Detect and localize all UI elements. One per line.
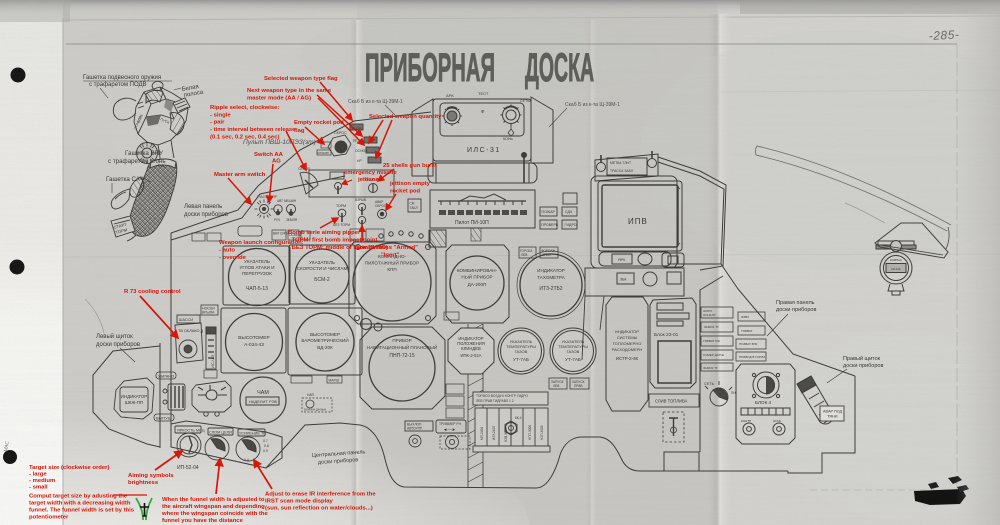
- svg-text:- pair: - pair: [210, 120, 225, 126]
- svg-text:25 shells gun burst: 25 shells gun burst: [383, 163, 437, 169]
- svg-text:Adjust to erase IR interferenc: Adjust to erase IR interference from the: [265, 492, 376, 498]
- svg-text:Bomb serie aiming pipper: Bomb serie aiming pipper: [288, 230, 361, 236]
- svg-text:Master arm switch: Master arm switch: [214, 172, 266, 178]
- svg-text:When the funnel width is adjus: When the funnel width is adjusted to: [162, 497, 265, 503]
- svg-text:- large: - large: [29, 472, 47, 478]
- svg-text:Selected weapon quantity: Selected weapon quantity: [369, 114, 442, 120]
- svg-text:master mode (AA / AG): master mode (AA / AG): [247, 96, 311, 102]
- svg-text:Bombs fuses "Armed": Bombs fuses "Armed": [355, 245, 418, 251]
- svg-text:- medium: - medium: [29, 478, 55, 484]
- svg-text:the aircraft wingspan and depe: the aircraft wingspan and depending: [162, 504, 265, 510]
- svg-text:where the wingspan coincide wi: where the wingspan coincide with the: [161, 511, 268, 517]
- svg-text:- small: - small: [29, 485, 48, 491]
- svg-text:jettison empty: jettison empty: [389, 181, 431, 187]
- svg-text:brightness: brightness: [128, 480, 159, 486]
- svg-text:rocket pod: rocket pod: [390, 189, 421, 195]
- svg-text:potentiometer: potentiometer: [29, 515, 69, 521]
- svg-text:IRST scan mode display: IRST scan mode display: [265, 499, 333, 505]
- svg-text:(0.1 sec, 0.2 sec, 0.4 sec): (0.1 sec, 0.2 sec, 0.4 sec): [210, 135, 279, 141]
- svg-text:Empty rocket pod: Empty rocket pod: [294, 120, 344, 126]
- svg-text:Target size (clockwise order): Target size (clockwise order): [29, 465, 109, 471]
- svg-text:- time interval between releas: - time interval between release: [210, 127, 296, 133]
- svg-text:Weapon launch configuration:: Weapon launch configuration:: [219, 240, 304, 246]
- svg-text:Ripple select, clockwise:: Ripple select, clockwise:: [210, 105, 279, 111]
- svg-text:Switch AA: Switch AA: [254, 152, 284, 158]
- svg-text:- override: - override: [219, 255, 247, 261]
- svg-text:jettison: jettison: [357, 177, 379, 183]
- svg-text:funnel you have the distance: funnel you have the distance: [162, 518, 244, 524]
- svg-text:Selected weapon type flag: Selected weapon type flag: [264, 76, 338, 82]
- svg-text:funnel. The funnel width is se: funnel. The funnel width is set by this: [29, 508, 135, 514]
- svg-text:- auto: - auto: [219, 248, 235, 254]
- svg-text:(sun, sun reflection on water/: (sun, sun reflection on water/clouds...): [265, 506, 373, 512]
- svg-text:"Inert": "Inert": [381, 253, 400, 259]
- svg-text:Next weapon type in the same: Next weapon type in the same: [247, 88, 332, 94]
- svg-text:- single: - single: [210, 113, 231, 119]
- svg-text:AG: AG: [272, 159, 281, 165]
- svg-text:Aiming symbols: Aiming symbols: [128, 473, 174, 479]
- svg-text:emergency missile: emergency missile: [344, 170, 397, 176]
- svg-text:flag: flag: [294, 128, 305, 134]
- svg-text:target width with a decreasing: target width with a decreasing width: [29, 501, 131, 507]
- svg-text:R 73 cooling control: R 73 cooling control: [124, 289, 181, 295]
